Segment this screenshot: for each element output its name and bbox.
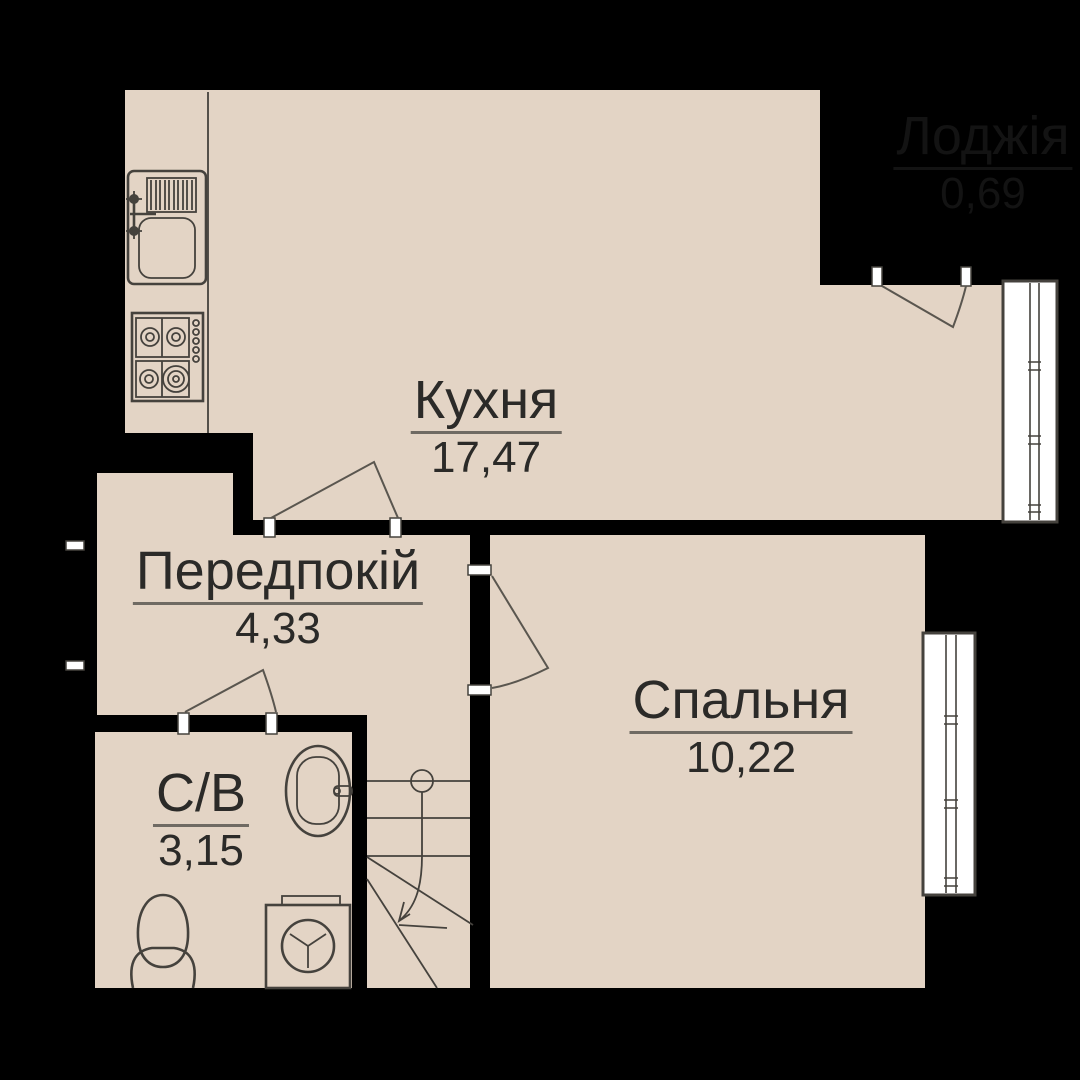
room-area-kitchen: 17,47 [411, 435, 562, 481]
room-name-bedroom: Спальня [630, 673, 853, 734]
entrance-opening [66, 541, 84, 670]
room-name-kitchen: Кухня [411, 373, 562, 434]
room-label-loggia: Лоджія 0,69 [893, 109, 1072, 217]
room-area-bedroom: 10,22 [630, 735, 853, 781]
room-label-kitchen: Кухня 17,47 [411, 373, 562, 481]
room-area-loggia: 0,69 [893, 171, 1072, 217]
bedroom-window [923, 633, 975, 895]
kitchen-window [1003, 281, 1057, 522]
room-name-bathroom: С/В [153, 766, 249, 827]
room-name-loggia: Лоджія [893, 109, 1072, 170]
room-label-bathroom: С/В 3,15 [153, 766, 249, 874]
kitchen-floor [125, 90, 1005, 520]
room-area-bathroom: 3,15 [153, 828, 249, 874]
room-label-bedroom: Спальня 10,22 [630, 673, 853, 781]
room-label-hallway: Передпокій 4,33 [133, 544, 423, 652]
floor-plan: Кухня 17,47 Передпокій 4,33 Спальня 10,2… [0, 0, 1080, 1080]
room-name-hallway: Передпокій [133, 544, 423, 605]
room-area-hallway: 4,33 [133, 606, 423, 652]
